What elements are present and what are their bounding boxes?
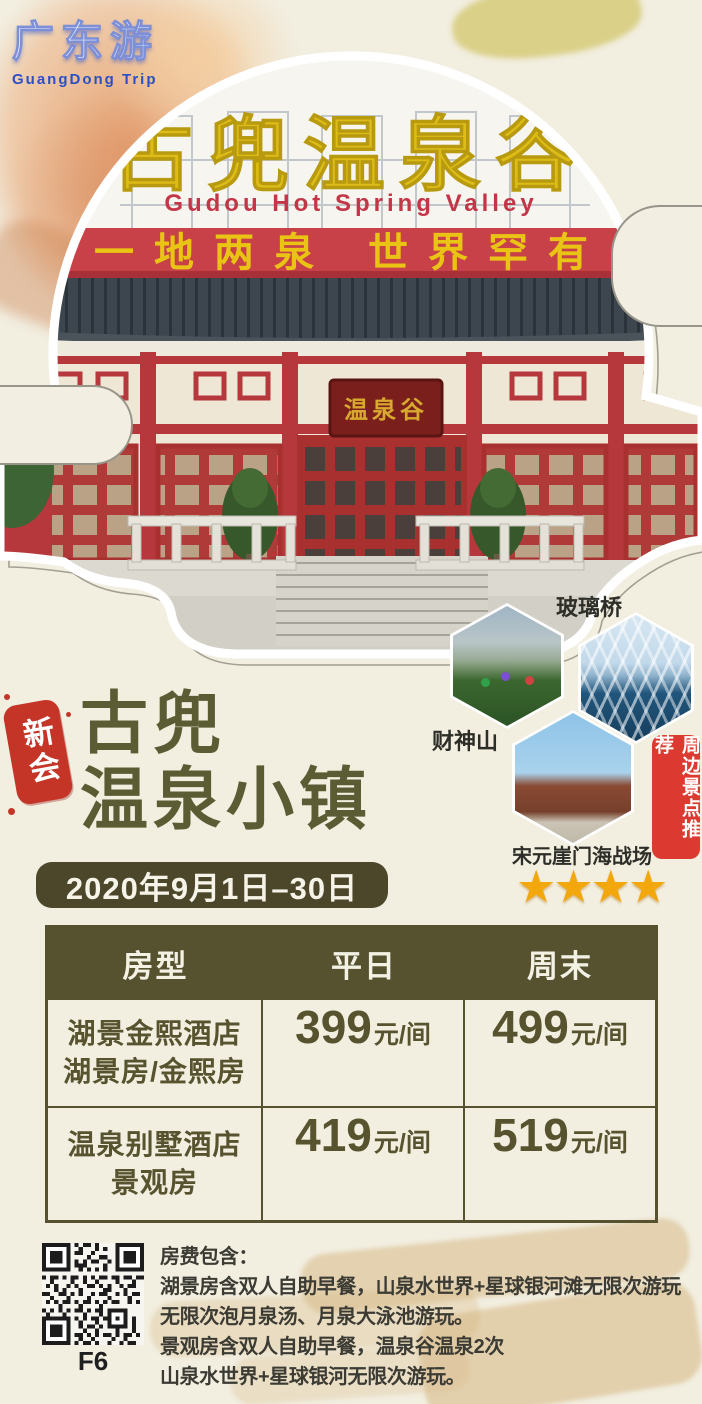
weekday-price-cell: 419 元/间 [263,1108,465,1220]
price-value: 399 [295,1000,372,1054]
room-cell: 温泉别墅酒店 景观房 [48,1108,263,1220]
cloud-notch-left [0,386,132,464]
nearby-attractions-tag: 周边景点推荐 [652,735,700,859]
price-value: 419 [295,1108,372,1162]
title-line1: 古兜 [80,686,372,762]
cloud-notch-right [612,206,702,326]
seal-ink-splatter [8,808,15,815]
weekday-price-cell: 399 元/间 [263,1000,465,1106]
includes-line: 山泉水世界+星球银河无限次游玩。 [160,1362,695,1392]
qr-caption: F6 [42,1346,144,1377]
attraction-label-caishenshan: 财神山 [432,724,498,756]
price-value: 519 [492,1108,569,1162]
seal-text: 新会 [17,715,60,789]
yamen-battlefield-image [515,713,631,843]
caishenshan-image [453,606,561,726]
seal-ink-splatter [4,694,10,700]
hero-sign-banner: 一地两泉 世界罕有 [94,229,608,276]
seal-ink-splatter [66,712,71,717]
includes-line: 湖景房含双人自助早餐，山泉水世界+星球银河滩无限次游玩 [160,1272,695,1302]
room-cell: 湖景金熙酒店 湖景房/金熙房 [48,1000,263,1106]
includes-heading: 房费包含： [160,1242,695,1272]
brand-subtitle: GuangDong Trip [12,71,202,88]
attraction-label-glass-bridge: 玻璃桥 [556,590,622,622]
poster: 古兜温泉谷 Gudou Hot Spring Valley 一地两泉 世界罕有 [0,0,702,1404]
room-name: 温泉别墅酒店 [67,1126,241,1164]
hero-sign-title: 古兜温泉谷 [111,107,591,203]
room-fee-includes: 房费包含： 湖景房含双人自助早餐，山泉水世界+星球银河滩无限次游玩 无限次泡月泉… [160,1242,695,1392]
room-subname: 景观房 [111,1164,198,1202]
price-table: 房型 平日 周末 湖景金熙酒店 湖景房/金熙房 399 元/间 499 元/间 … [45,925,658,1223]
brand-name: 广东游 [12,8,202,69]
cable-car-dot [525,676,534,685]
price-unit: 元/间 [571,1015,628,1051]
weekend-price-cell: 499 元/间 [465,1000,655,1106]
cable-car-dot [501,672,510,681]
qr-code [42,1243,144,1345]
price-unit: 元/间 [374,1123,431,1159]
title-line2: 温泉小镇 [80,762,372,838]
hero-sign-subtitle: Gudou Hot Spring Valley [164,190,537,217]
hero-plaque: 温泉谷 [344,395,428,424]
includes-line: 景观房含双人自助早餐，温泉谷温泉2次 [160,1332,695,1362]
star-rating: ★★★★ [516,860,692,913]
header-weekday: 平日 [263,928,465,998]
table-row: 湖景金熙酒店 湖景房/金熙房 399 元/间 499 元/间 [48,998,655,1106]
price-value: 499 [492,1000,569,1054]
date-banner: 2020年9月1日–30日 [36,862,388,908]
price-unit: 元/间 [374,1015,431,1051]
header-room-type: 房型 [48,928,263,998]
cable-car-dot [481,678,490,687]
weekend-price-cell: 519 元/间 [465,1108,655,1220]
hero-photo: 古兜温泉谷 Gudou Hot Spring Valley 一地两泉 世界罕有 [0,0,702,672]
header-weekend: 周末 [465,928,655,998]
price-table-header: 房型 平日 周末 [48,928,655,998]
page-title: 古兜 温泉小镇 [80,686,372,838]
xinhui-seal: 新会 [2,698,75,806]
price-unit: 元/间 [571,1123,628,1159]
table-row: 温泉别墅酒店 景观房 419 元/间 519 元/间 [48,1106,655,1220]
room-subname: 湖景房/金熙房 [63,1053,246,1091]
room-name: 湖景金熙酒店 [67,1015,241,1053]
brand-logo: 广东游 GuangDong Trip [12,8,202,88]
includes-line: 无限次泡月泉汤、月泉大泳池游玩。 [160,1302,695,1332]
